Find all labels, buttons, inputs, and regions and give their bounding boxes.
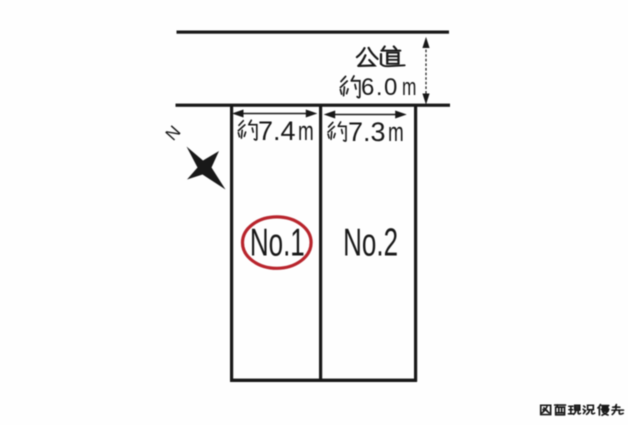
svg-text:m: m [298, 116, 314, 146]
svg-text:N: N [161, 122, 184, 145]
svg-text:No.1: No.1 [250, 220, 305, 263]
svg-text:7.4: 7.4 [258, 116, 296, 146]
svg-text:7.3: 7.3 [348, 117, 386, 147]
svg-text:No.2: No.2 [343, 220, 398, 263]
svg-text:6.0: 6.0 [361, 74, 399, 101]
svg-text:m: m [402, 74, 416, 100]
svg-text:m: m [388, 117, 404, 147]
